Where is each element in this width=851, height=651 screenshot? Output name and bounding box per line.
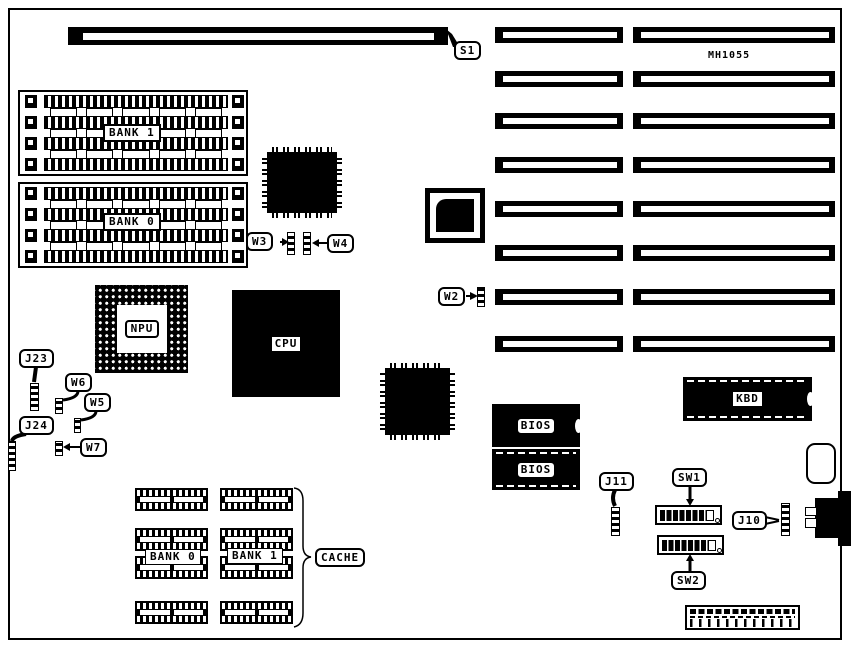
dram-chip [159, 150, 186, 159]
chip-notch [575, 419, 582, 433]
socket-clip [232, 95, 244, 108]
expansion-slot-opening [503, 32, 617, 38]
dram-chip [122, 150, 149, 159]
socket-chip [174, 497, 204, 502]
socket-clip [232, 229, 244, 242]
keyboard-din-connector-body [815, 498, 840, 538]
socket-chip [174, 537, 204, 542]
socket-pins [222, 603, 291, 609]
sw2-switch-cell-off [708, 540, 716, 551]
socket-chip [259, 610, 289, 615]
dram-chip [195, 242, 222, 251]
sw1-switch-cells [660, 510, 712, 521]
expansion-slot-opening [641, 250, 829, 256]
expansion-slot-right [633, 27, 835, 43]
dram-chip-row [50, 242, 222, 251]
expansion-slot-opening [503, 118, 617, 124]
chip-pins [390, 435, 445, 440]
simm-pin-row [44, 187, 228, 200]
dram-chip [122, 242, 149, 251]
socket-chip [225, 497, 255, 502]
dram-chip-row [50, 108, 222, 117]
dram-chip [50, 242, 77, 251]
plcc-chip [436, 199, 474, 232]
socket-pins [137, 503, 206, 509]
cache-socket [135, 528, 208, 551]
socket-clip [232, 208, 244, 221]
w3-jumper [287, 232, 295, 255]
socket-pins [222, 616, 291, 622]
expansion-slot-left [495, 289, 623, 305]
w7-jumper [55, 441, 63, 456]
simm-pin-row [44, 158, 228, 171]
socket-pins [137, 603, 206, 609]
socket-body [137, 610, 206, 615]
socket-body [222, 610, 291, 615]
dram-chip [86, 200, 113, 209]
sw1-switch-cell-off [706, 510, 714, 521]
npu-label: NPU [125, 320, 160, 338]
simm-pin-row [44, 250, 228, 263]
dram-chip [122, 108, 149, 117]
socket-body [137, 497, 206, 502]
dram-chip [86, 150, 113, 159]
dram-chip [50, 129, 77, 138]
w5-jumper [74, 418, 81, 433]
socket-pins [137, 490, 206, 496]
cache-socket [220, 488, 293, 511]
socket-body [222, 537, 291, 542]
power-connector-pins [690, 609, 795, 614]
w3-callout: W3 [246, 232, 273, 251]
dram-chip [122, 200, 149, 209]
socket-pins [137, 530, 206, 536]
socket-clip [232, 116, 244, 129]
socket-chip [259, 497, 289, 502]
socket-clip [25, 95, 37, 108]
cache-socket [220, 601, 293, 624]
power-connector-divider [690, 616, 795, 618]
chip-notch [807, 392, 814, 406]
dram-chip [195, 150, 222, 159]
expansion-slot-right [633, 289, 835, 305]
socket-chip [140, 497, 170, 502]
socket-pins [222, 490, 291, 496]
simm-pin-row [44, 95, 228, 108]
dram-chip [195, 221, 222, 230]
j24-callout: J24 [19, 416, 54, 435]
chip-pin-row [687, 380, 808, 382]
dram-chip [195, 200, 222, 209]
socket-pins [222, 530, 291, 536]
expansion-slot-opening [641, 118, 829, 124]
dram-chip [50, 200, 77, 209]
w7-callout: W7 [80, 438, 107, 457]
j10-pin-header [781, 503, 790, 536]
chip-pin-row [687, 416, 808, 418]
expansion-slot-left [495, 71, 623, 87]
chip-pin-row [496, 485, 576, 487]
j10-callout: J10 [732, 511, 767, 530]
expansion-slot-left [495, 113, 623, 129]
socket-chip [174, 610, 204, 615]
dram-chip [195, 129, 222, 138]
qfp-chip-lower [385, 368, 450, 435]
socket-pins [222, 571, 291, 577]
sw2-pin1-dot [717, 548, 722, 553]
dram-chip [159, 242, 186, 251]
din-connector-pin-block [805, 518, 817, 528]
socket-chip [225, 565, 255, 570]
chip-pin-row [496, 452, 576, 454]
dram-chip [50, 221, 77, 230]
power-connector [685, 605, 800, 630]
expansion-slot-left [495, 27, 623, 43]
expansion-slot-left [495, 336, 623, 352]
socket-chip [140, 565, 170, 570]
sw2-switch-cells [662, 540, 714, 551]
w4-jumper [303, 232, 311, 255]
memory-bank1-label: BANK 1 [103, 124, 161, 142]
chip-pins [272, 213, 332, 218]
sw1-pin1-dot [715, 518, 720, 523]
expansion-slot-opening [641, 162, 829, 168]
chip-pins [337, 157, 342, 208]
chip-pins [390, 363, 445, 368]
dram-chip-row [50, 200, 222, 209]
cache-socket [135, 488, 208, 511]
socket-clip [232, 137, 244, 150]
qfp-chip-upper [267, 152, 337, 213]
expansion-slot-right [633, 71, 835, 87]
expansion-slot-opening [641, 341, 829, 347]
cpu-chip: CPU [232, 290, 340, 397]
cache-bank1-label: BANK 1 [227, 548, 283, 564]
socket-clip [25, 137, 37, 150]
plcc-socket [425, 188, 485, 243]
dram-chip [159, 200, 186, 209]
expansion-slot-opening [641, 32, 829, 38]
socket-clip [25, 158, 37, 171]
w6-jumper [55, 398, 63, 414]
socket-pins [137, 571, 206, 577]
socket-chip [140, 610, 170, 615]
dram-chip [50, 108, 77, 117]
expansion-slot-opening [641, 294, 829, 300]
chip-pins [272, 147, 332, 152]
plcc-socket-frame [430, 193, 480, 238]
socket-pins [222, 503, 291, 509]
expansion-slot-left [495, 201, 623, 217]
dram-chip [159, 129, 186, 138]
socket-chip [140, 537, 170, 542]
chip-pins [380, 373, 385, 430]
dram-chip [86, 108, 113, 117]
expansion-slot-right [633, 201, 835, 217]
j23-pin-header [30, 383, 39, 411]
dram-chip [159, 221, 186, 230]
bios-chip-bottom: BIOS [492, 449, 580, 490]
s1-edge-connector-slot [83, 33, 434, 40]
cache-socket [135, 601, 208, 624]
w5-callout: W5 [84, 393, 111, 412]
j11-pin-header [611, 507, 620, 536]
socket-clip [232, 187, 244, 200]
socket-clip [25, 229, 37, 242]
npu-socket: NPU [95, 285, 188, 373]
socket-clip [25, 187, 37, 200]
npu-socket-center: NPU [117, 305, 167, 353]
dram-chip [159, 108, 186, 117]
expansion-slot-left [495, 245, 623, 261]
battery-holder [806, 443, 836, 484]
cpu-label: CPU [271, 336, 302, 352]
sw2-callout: SW2 [671, 571, 706, 590]
socket-clip [25, 250, 37, 263]
motherboard-diagram: MH1055 BANK 1 BANK 0 NPU CPU BIOS [0, 0, 851, 651]
expansion-slot-right [633, 113, 835, 129]
dram-chip-row [50, 150, 222, 159]
socket-clip [232, 250, 244, 263]
cache-bank0-label: BANK 0 [145, 549, 201, 565]
socket-chip [259, 537, 289, 542]
sw2-dip-switch [657, 535, 724, 555]
socket-pins [137, 616, 206, 622]
expansion-slot-right [633, 245, 835, 261]
socket-body [137, 565, 206, 570]
socket-body [137, 537, 206, 542]
w4-callout: W4 [327, 234, 354, 253]
w6-callout: W6 [65, 373, 92, 392]
socket-clip [25, 116, 37, 129]
board-model-text: MH1055 [708, 50, 750, 61]
expansion-slot-opening [503, 294, 617, 300]
socket-body [222, 565, 291, 570]
kbd-chip: KBD [683, 377, 812, 421]
j24-pin-header [8, 441, 16, 471]
socket-chip [174, 565, 204, 570]
s1-callout: S1 [454, 41, 481, 60]
expansion-slot-opening [503, 250, 617, 256]
bios-chip-top: BIOS [492, 404, 580, 447]
expansion-slot-opening [503, 206, 617, 212]
expansion-slot-opening [503, 341, 617, 347]
expansion-slot-left [495, 157, 623, 173]
j11-callout: J11 [599, 472, 634, 491]
bios-top-label: BIOS [517, 418, 556, 434]
socket-chip [259, 565, 289, 570]
power-connector-sockets [690, 619, 795, 627]
sw1-dip-switch [655, 505, 722, 525]
bios-bottom-label: BIOS [517, 462, 556, 478]
chip-pins [262, 157, 267, 208]
sw1-callout: SW1 [672, 468, 707, 487]
expansion-slot-opening [503, 162, 617, 168]
dram-chip [195, 108, 222, 117]
expansion-slot-opening [641, 76, 829, 82]
chip-pins [450, 373, 455, 430]
s1-edge-connector [68, 27, 448, 45]
socket-chip [225, 610, 255, 615]
dram-chip [50, 150, 77, 159]
memory-bank0-label: BANK 0 [103, 213, 161, 231]
dram-chip [86, 242, 113, 251]
w2-jumper [477, 287, 485, 307]
socket-clip [232, 158, 244, 171]
socket-chip [225, 537, 255, 542]
expansion-slot-right [633, 157, 835, 173]
expansion-slot-opening [503, 76, 617, 82]
socket-clip [25, 208, 37, 221]
kbd-label: KBD [732, 391, 763, 407]
din-connector-pin-block [805, 507, 817, 516]
cache-callout: CACHE [315, 548, 365, 567]
j23-callout: J23 [19, 349, 54, 368]
expansion-slot-right [633, 336, 835, 352]
expansion-slot-opening [641, 206, 829, 212]
w2-callout: W2 [438, 287, 465, 306]
socket-body [222, 497, 291, 502]
